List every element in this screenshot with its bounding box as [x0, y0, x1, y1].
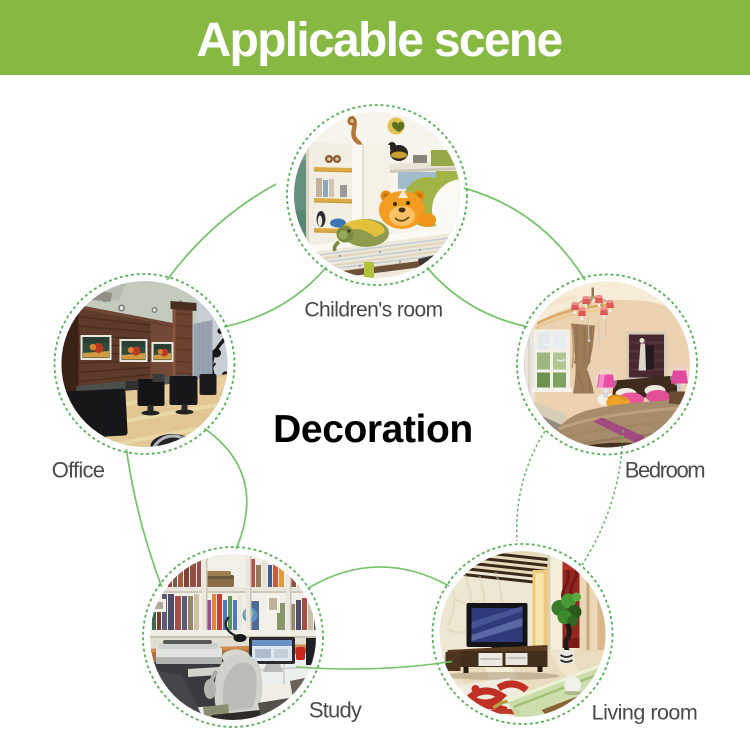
- svg-text:Children's room: Children's room: [304, 299, 442, 322]
- svg-text:Office: Office: [52, 458, 105, 483]
- svg-text:Bedroom: Bedroom: [625, 458, 705, 483]
- svg-text:Living room: Living room: [592, 701, 698, 725]
- svg-text:Study: Study: [309, 698, 362, 723]
